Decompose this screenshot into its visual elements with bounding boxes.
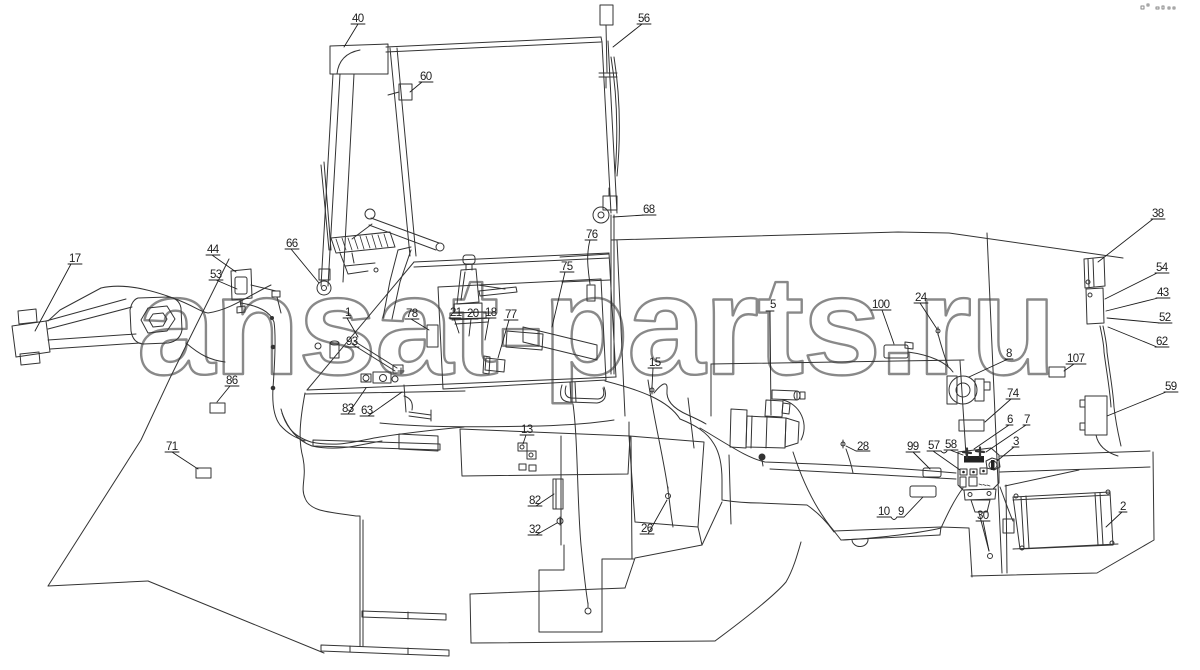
svg-text:99: 99 <box>907 441 919 453</box>
svg-text:6: 6 <box>1007 414 1013 426</box>
svg-text:54: 54 <box>1156 262 1169 274</box>
svg-text:82: 82 <box>529 495 541 507</box>
svg-text:63: 63 <box>361 405 373 417</box>
svg-text:24: 24 <box>915 292 928 304</box>
svg-text:38: 38 <box>1152 208 1164 220</box>
svg-text:86: 86 <box>226 375 238 387</box>
svg-text:78: 78 <box>406 308 418 320</box>
svg-text:43: 43 <box>1157 287 1169 299</box>
svg-text:13: 13 <box>521 424 533 436</box>
svg-text:60: 60 <box>420 71 432 83</box>
svg-text:21: 21 <box>450 307 462 319</box>
svg-text:40: 40 <box>352 13 364 25</box>
svg-text:68: 68 <box>643 204 655 216</box>
svg-text:44: 44 <box>207 244 220 256</box>
svg-text:56: 56 <box>638 13 650 25</box>
svg-text:59: 59 <box>1165 381 1177 393</box>
svg-text:71: 71 <box>166 441 178 453</box>
svg-text:75: 75 <box>561 261 573 273</box>
svg-text:58: 58 <box>945 439 957 451</box>
svg-text:53: 53 <box>210 269 222 281</box>
svg-text:77: 77 <box>505 309 517 321</box>
svg-text:93: 93 <box>346 336 358 348</box>
svg-text:1: 1 <box>345 307 351 319</box>
svg-text:17: 17 <box>69 253 81 265</box>
svg-text:100: 100 <box>872 299 890 311</box>
svg-text:18: 18 <box>485 307 497 319</box>
svg-text:30: 30 <box>977 510 989 522</box>
svg-text:57: 57 <box>928 440 940 452</box>
svg-text:3: 3 <box>1013 436 1019 448</box>
svg-text:52: 52 <box>1159 312 1171 324</box>
svg-text:76: 76 <box>586 229 598 241</box>
svg-text:107: 107 <box>1067 353 1085 365</box>
svg-text:20: 20 <box>467 308 479 320</box>
svg-text:66: 66 <box>286 238 298 250</box>
svg-text:5: 5 <box>770 299 776 311</box>
svg-text:7: 7 <box>1024 414 1030 426</box>
svg-text:74: 74 <box>1007 388 1020 400</box>
svg-text:10: 10 <box>878 506 890 518</box>
svg-text:9: 9 <box>898 506 904 518</box>
svg-text:15: 15 <box>649 357 661 369</box>
svg-text:32: 32 <box>529 524 541 536</box>
svg-text:62: 62 <box>1156 336 1168 348</box>
svg-text:8: 8 <box>1006 348 1012 360</box>
svg-text:2: 2 <box>1120 501 1126 513</box>
svg-text:83: 83 <box>342 403 354 415</box>
